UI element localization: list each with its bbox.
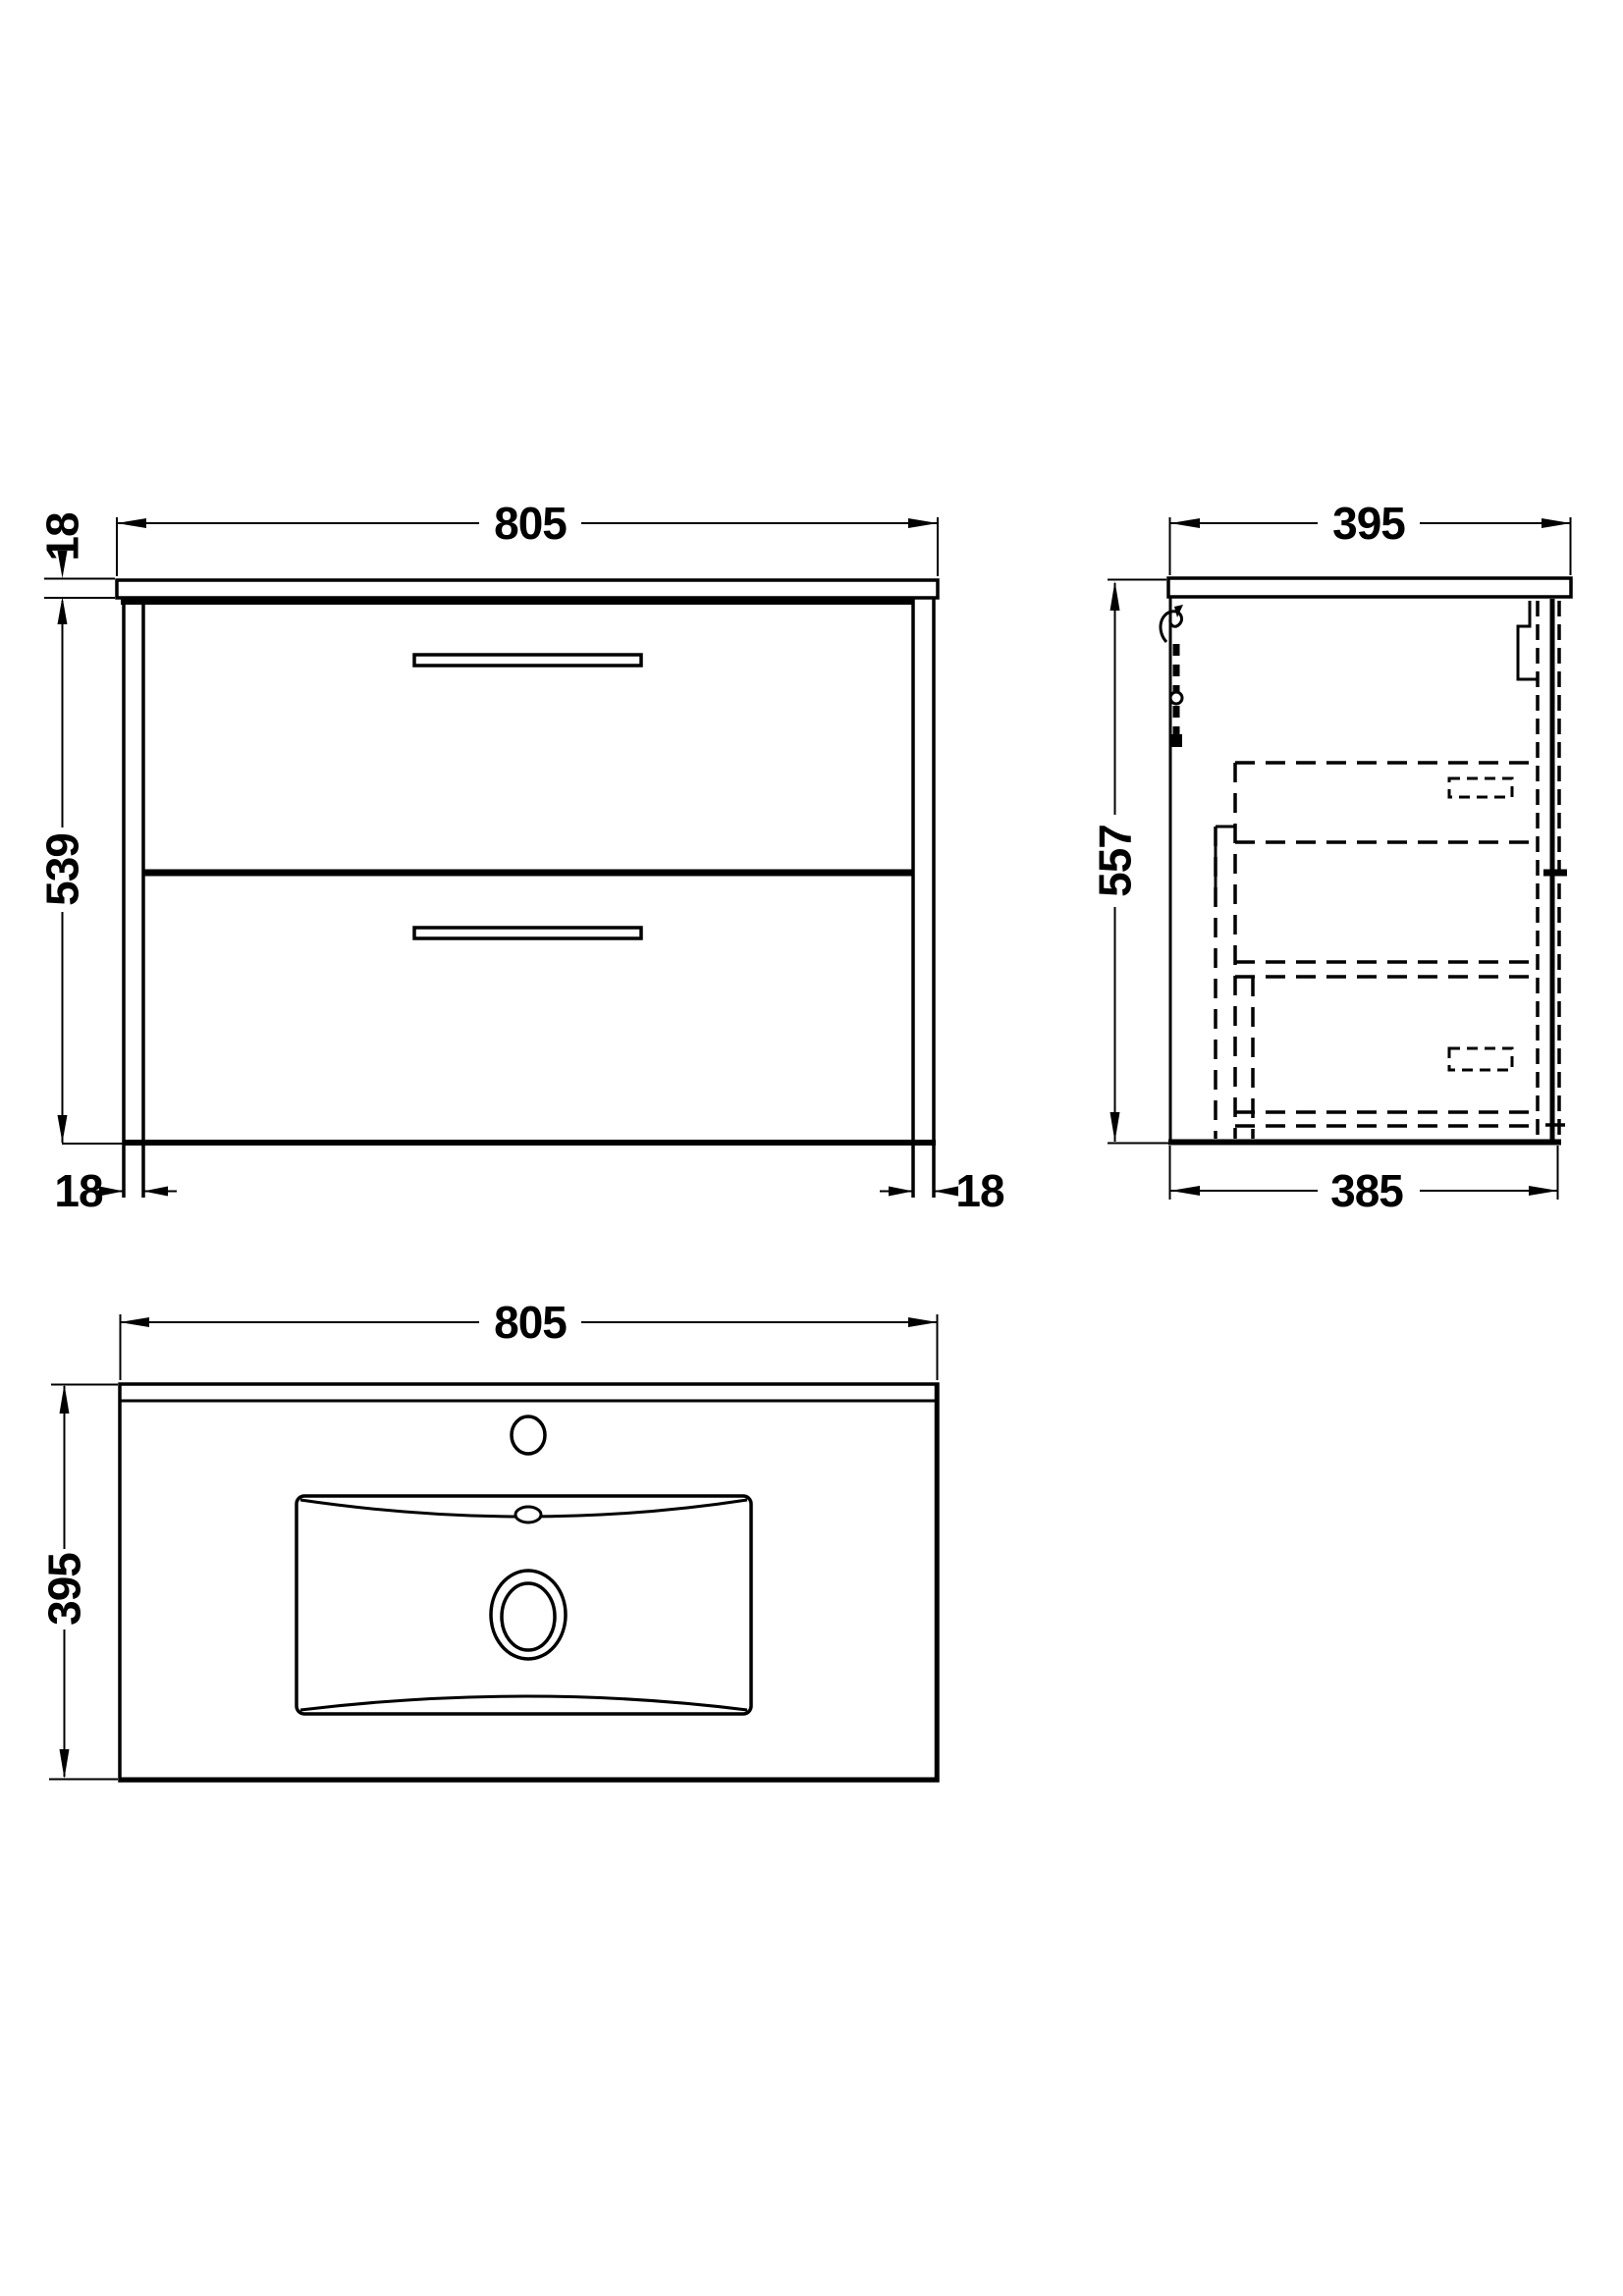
fixing-screw xyxy=(1170,692,1182,704)
fixing-block xyxy=(1169,734,1182,747)
side-depth-label: 395 xyxy=(1332,498,1405,549)
plan-width-label: 805 xyxy=(494,1297,567,1348)
sheet-background xyxy=(0,0,1623,2296)
plan-depth-label: 395 xyxy=(39,1553,90,1626)
overflow-hole xyxy=(515,1507,541,1522)
technical-drawing: 805 18 539 18 xyxy=(0,0,1623,2296)
front-counter-top xyxy=(117,580,938,598)
drain-inner-ring xyxy=(502,1583,555,1650)
front-counter-thickness-label: 18 xyxy=(37,512,88,561)
tap-hole xyxy=(512,1416,545,1454)
front-bottom-drawer-handle xyxy=(414,928,641,938)
front-top-drawer-handle xyxy=(414,655,641,666)
side-base-depth-label: 385 xyxy=(1330,1165,1403,1216)
front-left-panel-label: 18 xyxy=(54,1165,103,1216)
front-right-panel-label: 18 xyxy=(955,1165,1004,1216)
front-width-label: 805 xyxy=(494,498,567,549)
front-height-label: 539 xyxy=(37,833,88,906)
drawing-sheet: 805 18 539 18 xyxy=(0,0,1623,2296)
side-counter-top xyxy=(1168,578,1571,597)
side-height-label: 557 xyxy=(1090,825,1141,897)
